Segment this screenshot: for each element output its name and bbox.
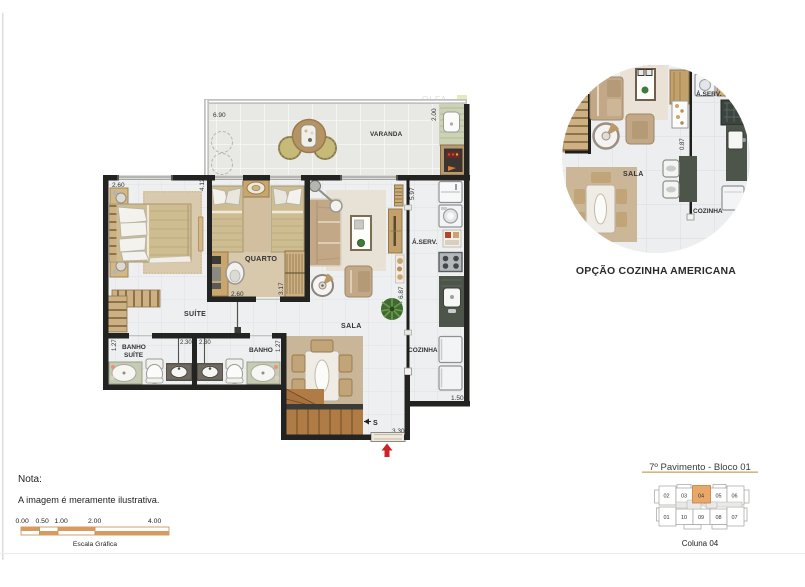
svg-text:10: 10 [681,515,687,521]
svg-text:3.17: 3.17 [278,282,285,295]
svg-text:1.00: 1.00 [55,518,68,525]
svg-text:01: 01 [664,515,670,521]
svg-text:5.97: 5.97 [409,187,416,200]
svg-text:0.50: 0.50 [36,518,49,525]
svg-text:SUÍTE: SUÍTE [124,350,144,359]
svg-text:7º Pavimento - Bloco 01: 7º Pavimento - Bloco 01 [649,462,751,473]
svg-text:2.60: 2.60 [112,182,125,189]
svg-text:QUARTO: QUARTO [245,254,277,263]
svg-text:1.27: 1.27 [112,339,118,351]
svg-text:Á.SERV.: Á.SERV. [412,237,437,246]
svg-text:2.00: 2.00 [88,518,101,525]
svg-text:0.87: 0.87 [680,138,686,150]
svg-text:BANHO: BANHO [249,347,273,354]
svg-text:1.50: 1.50 [451,395,464,402]
svg-text:2.00: 2.00 [431,108,438,121]
svg-text:Á.SERV.: Á.SERV. [696,89,721,98]
svg-text:02: 02 [664,494,670,500]
svg-text:SALA: SALA [341,323,362,330]
svg-text:09: 09 [698,515,704,521]
svg-text:A imagem é meramente ilustrati: A imagem é meramente ilustrativa. [18,495,159,505]
svg-text:4.00: 4.00 [148,518,161,525]
svg-text:VARANDA: VARANDA [370,131,403,138]
svg-text:OPÇÃO COZINHA AMERICANA: OPÇÃO COZINHA AMERICANA [576,264,736,277]
svg-text:Escala Gráfica: Escala Gráfica [73,541,117,548]
svg-text:6.90: 6.90 [213,112,226,119]
svg-text:03: 03 [681,494,687,500]
svg-text:COZINHA: COZINHA [408,347,438,354]
svg-text:05: 05 [716,494,722,500]
svg-text:6.87: 6.87 [398,286,405,299]
svg-text:BANHO: BANHO [122,344,146,351]
svg-text:0.00: 0.00 [16,518,29,525]
svg-text:COZINHA: COZINHA [693,208,723,215]
svg-text:07: 07 [732,515,738,521]
svg-text:SUÍTE: SUÍTE [184,309,206,318]
svg-text:04: 04 [698,494,704,500]
svg-text:2.30: 2.30 [199,340,211,346]
svg-text:S: S [373,420,378,427]
svg-text:08: 08 [716,515,722,521]
svg-text:Coluna 04: Coluna 04 [682,539,719,548]
svg-text:SALA: SALA [623,171,644,178]
svg-text:2.30: 2.30 [180,340,192,346]
svg-text:06: 06 [732,494,738,500]
svg-text:Nota:: Nota: [18,474,42,485]
